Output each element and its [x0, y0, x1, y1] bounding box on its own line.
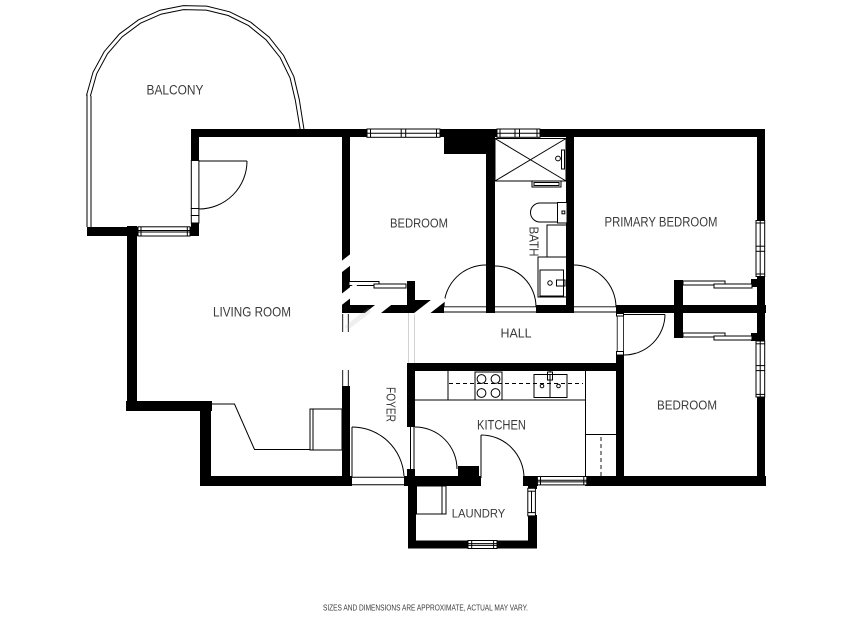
svg-text:FOYER: FOYER [384, 387, 398, 422]
svg-text:BEDROOM: BEDROOM [657, 398, 717, 413]
svg-text:PRIMARY BEDROOM: PRIMARY BEDROOM [605, 215, 718, 230]
svg-text:LIVING ROOM: LIVING ROOM [213, 304, 291, 320]
svg-text:KITCHEN: KITCHEN [477, 418, 526, 433]
svg-text:HALL: HALL [501, 326, 532, 341]
svg-text:LAUNDRY: LAUNDRY [452, 507, 506, 521]
svg-text:SIZES AND DIMENSIONS ARE APPRO: SIZES AND DIMENSIONS ARE APPROXIMATE, AC… [323, 604, 528, 613]
svg-text:BATH: BATH [526, 227, 541, 257]
svg-text:BEDROOM: BEDROOM [390, 216, 448, 231]
svg-text:BALCONY: BALCONY [147, 83, 204, 98]
